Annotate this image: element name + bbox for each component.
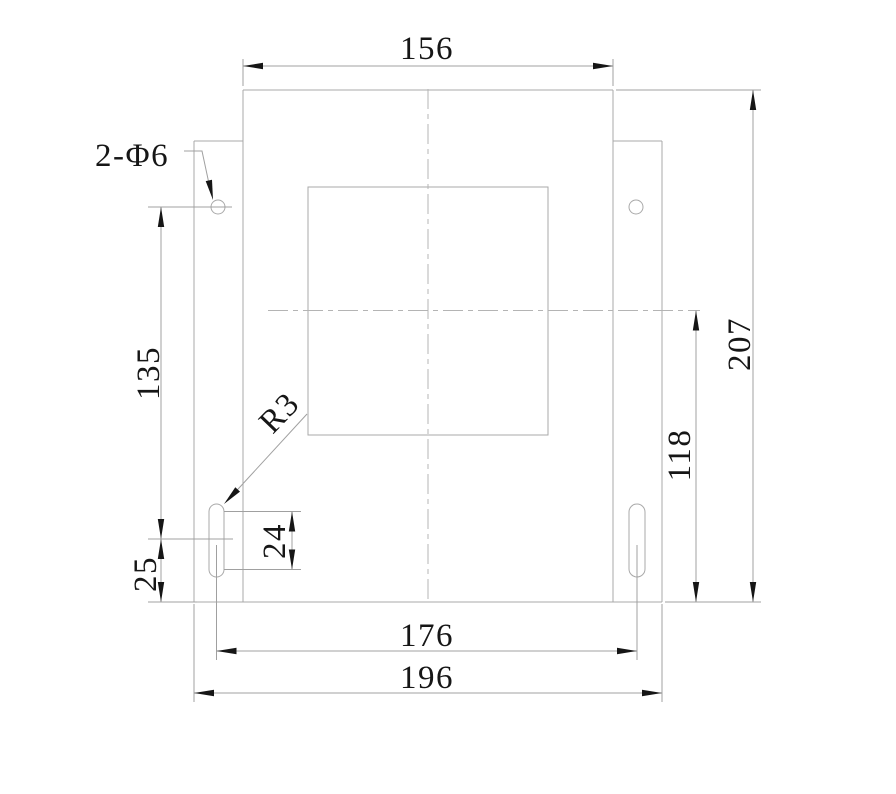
dimension-156-label: 156 bbox=[400, 31, 454, 67]
dimension-layer bbox=[158, 63, 756, 696]
dimension-118-label: 118 bbox=[662, 429, 698, 482]
dimension-196-arrowhead bbox=[642, 690, 662, 696]
dimension-156-arrowhead bbox=[593, 63, 613, 69]
dimension-118-arrowhead bbox=[693, 311, 699, 331]
dimension-156-arrowhead bbox=[243, 63, 263, 69]
dimension-24-label: 24 bbox=[257, 523, 293, 559]
dimension-196-label: 196 bbox=[400, 660, 454, 696]
dimension-207-arrowhead bbox=[750, 90, 756, 110]
dimension-135-arrowhead bbox=[158, 207, 164, 227]
dimension-176-label: 176 bbox=[400, 618, 454, 654]
dimension-25-arrowhead bbox=[158, 539, 164, 559]
dimension-207-label: 207 bbox=[722, 317, 758, 371]
dimension-207-arrowhead bbox=[750, 582, 756, 602]
dimension-176-arrowhead bbox=[217, 648, 237, 654]
dimension-135-arrowhead bbox=[158, 519, 164, 539]
drawing-canvas: 15620711813525241761962-Φ6R3 bbox=[0, 0, 896, 794]
mounting-hole-right bbox=[629, 200, 643, 214]
leader-hole-callout-label: 2-Φ6 bbox=[95, 138, 169, 174]
centerline-layer bbox=[268, 89, 700, 602]
leader-slot-radius-arrowhead bbox=[224, 487, 240, 504]
leader-slot-radius-label: R3 bbox=[252, 386, 307, 441]
dimension-196-arrowhead bbox=[194, 690, 214, 696]
dimension-25-label: 25 bbox=[128, 556, 164, 592]
extension-line-layer bbox=[148, 59, 761, 702]
leader-hole-callout-line bbox=[184, 151, 211, 193]
leader-hole-callout-arrowhead bbox=[206, 180, 213, 200]
dimension-118-arrowhead bbox=[693, 582, 699, 602]
dimension-135-label: 135 bbox=[131, 346, 167, 400]
dimension-176-arrowhead bbox=[617, 648, 637, 654]
engineering-drawing: 15620711813525241761962-Φ6R3 bbox=[0, 0, 896, 794]
